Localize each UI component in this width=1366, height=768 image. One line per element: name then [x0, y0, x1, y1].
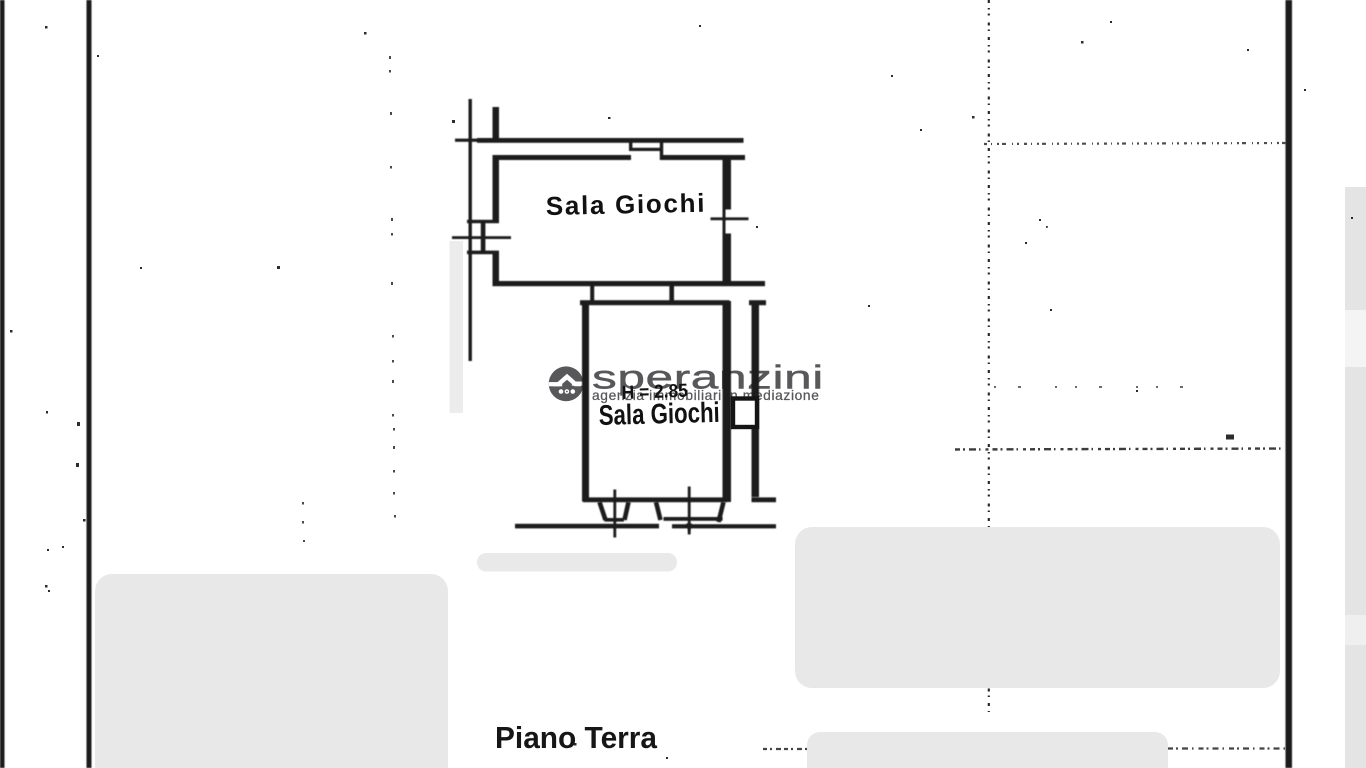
svg-text:Piano Terra: Piano Terra: [495, 721, 658, 755]
svg-text:Sala Giochi: Sala Giochi: [545, 188, 706, 221]
svg-text:Sala Giochi: Sala Giochi: [598, 397, 720, 432]
